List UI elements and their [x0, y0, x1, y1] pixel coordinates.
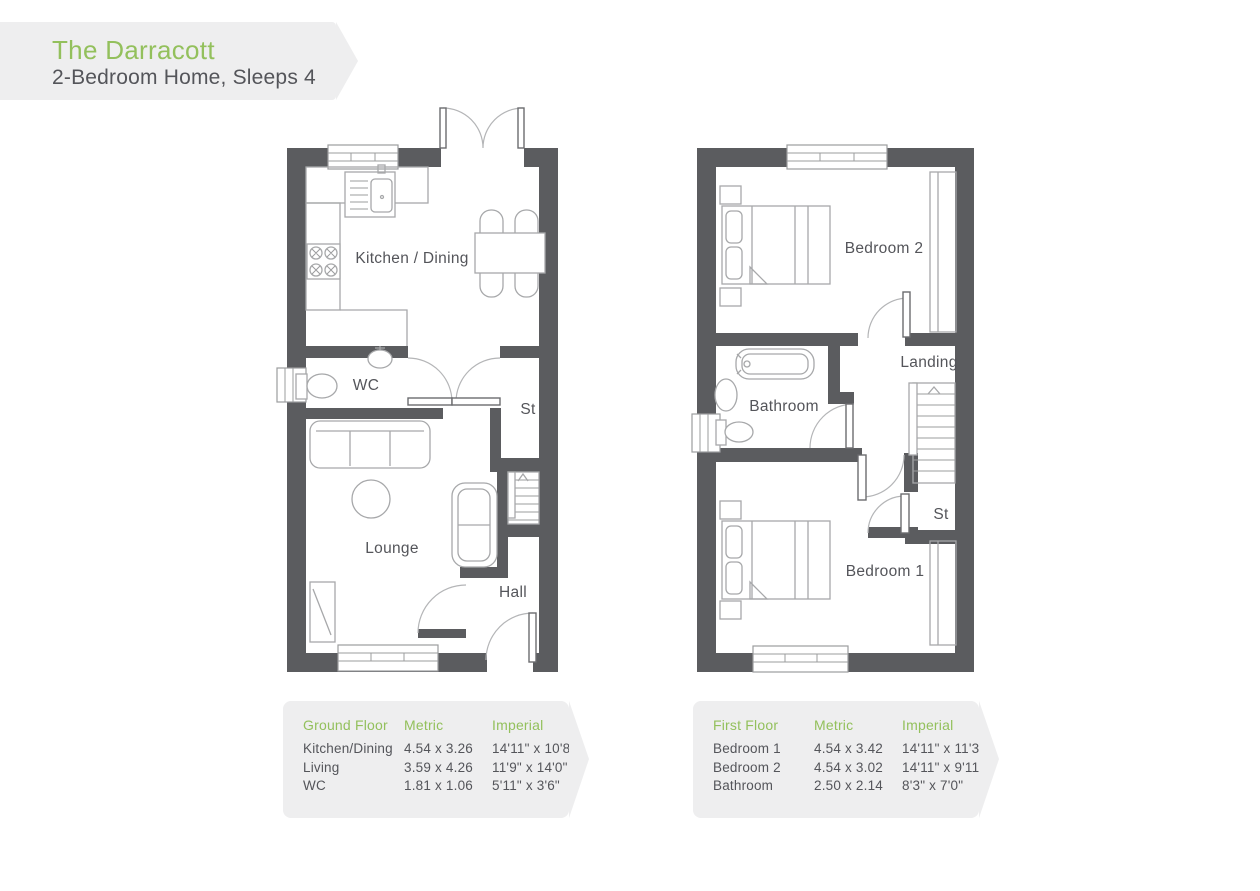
bedroom1-window	[753, 646, 848, 672]
label-kitchen-dining: Kitchen / Dining	[355, 250, 468, 267]
label-store-ground: St	[520, 401, 536, 418]
room-metric: 1.81 x 1.06	[404, 777, 492, 796]
lounge-window	[338, 645, 438, 671]
room-name: Kitchen/Dining	[303, 740, 404, 759]
first-floor-plan: Bedroom 2 Landing Bathroom St Bedroom 1	[670, 100, 990, 690]
bedroom2-window	[787, 145, 887, 169]
room-imperial: 14'11" x 10'8"	[492, 740, 575, 759]
label-store-first: St	[933, 506, 949, 523]
imperial-header: Imperial	[492, 717, 575, 740]
ground-floor-dimensions-panel: Ground Floor Metric Imperial Kitchen/Din…	[283, 701, 569, 818]
tv-unit-icon	[310, 582, 335, 642]
label-bathroom: Bathroom	[749, 398, 819, 415]
kitchen-window	[328, 145, 398, 169]
ground-floor-plan: Kitchen / Dining WC St Lounge Hall	[260, 100, 580, 690]
bathroom-basin-icon	[715, 379, 737, 411]
room-name: Bathroom	[713, 777, 814, 796]
page-subtitle: 2-Bedroom Home, Sleeps 4	[52, 65, 336, 90]
label-wc: WC	[353, 377, 379, 394]
floorplan-page: The Darracott 2-Bedroom Home, Sleeps 4	[0, 0, 1260, 891]
room-metric: 4.54 x 3.02	[814, 759, 902, 778]
bedroom1-bed-icon	[722, 521, 830, 599]
title-banner-point	[336, 22, 358, 100]
metric-header: Metric	[404, 717, 492, 740]
sofa-icon	[310, 421, 430, 468]
bath-icon	[736, 349, 814, 379]
room-metric: 4.54 x 3.42	[814, 740, 902, 759]
ground-panel-point	[569, 701, 589, 818]
hob-icon	[307, 244, 340, 279]
label-bedroom2: Bedroom 2	[845, 240, 924, 257]
first-floor-dimensions-panel: First Floor Metric Imperial Bedroom 1 4.…	[693, 701, 979, 818]
room-imperial: 14'11" x 9'11"	[902, 759, 984, 778]
room-imperial: 5'11" x 3'6"	[492, 777, 575, 796]
sink-icon	[345, 165, 395, 217]
ground-floor-header: Ground Floor	[303, 717, 404, 740]
first-floor-header: First Floor	[713, 717, 814, 740]
french-doors	[440, 108, 524, 148]
room-name: WC	[303, 777, 404, 796]
room-metric: 3.59 x 4.26	[404, 759, 492, 778]
metric-header: Metric	[814, 717, 902, 740]
page-title: The Darracott	[52, 35, 336, 65]
room-metric: 2.50 x 2.14	[814, 777, 902, 796]
room-imperial: 8'3" x 7'0"	[902, 777, 984, 796]
room-imperial: 11'9" x 14'0"	[492, 759, 575, 778]
title-banner: The Darracott 2-Bedroom Home, Sleeps 4	[0, 22, 336, 100]
first-panel-point	[979, 701, 999, 818]
room-name: Bedroom 2	[713, 759, 814, 778]
imperial-header: Imperial	[902, 717, 984, 740]
label-landing: Landing	[900, 354, 957, 371]
room-name: Bedroom 1	[713, 740, 814, 759]
label-lounge: Lounge	[365, 540, 419, 557]
label-hall: Hall	[499, 584, 527, 601]
room-metric: 4.54 x 3.26	[404, 740, 492, 759]
bedroom2-bed-icon	[722, 206, 830, 284]
wc-toilet-icon	[296, 374, 337, 399]
room-imperial: 14'11" x 11'3"	[902, 740, 984, 759]
label-bedroom1: Bedroom 1	[846, 563, 925, 580]
room-name: Living	[303, 759, 404, 778]
armchair-icon	[452, 483, 497, 567]
